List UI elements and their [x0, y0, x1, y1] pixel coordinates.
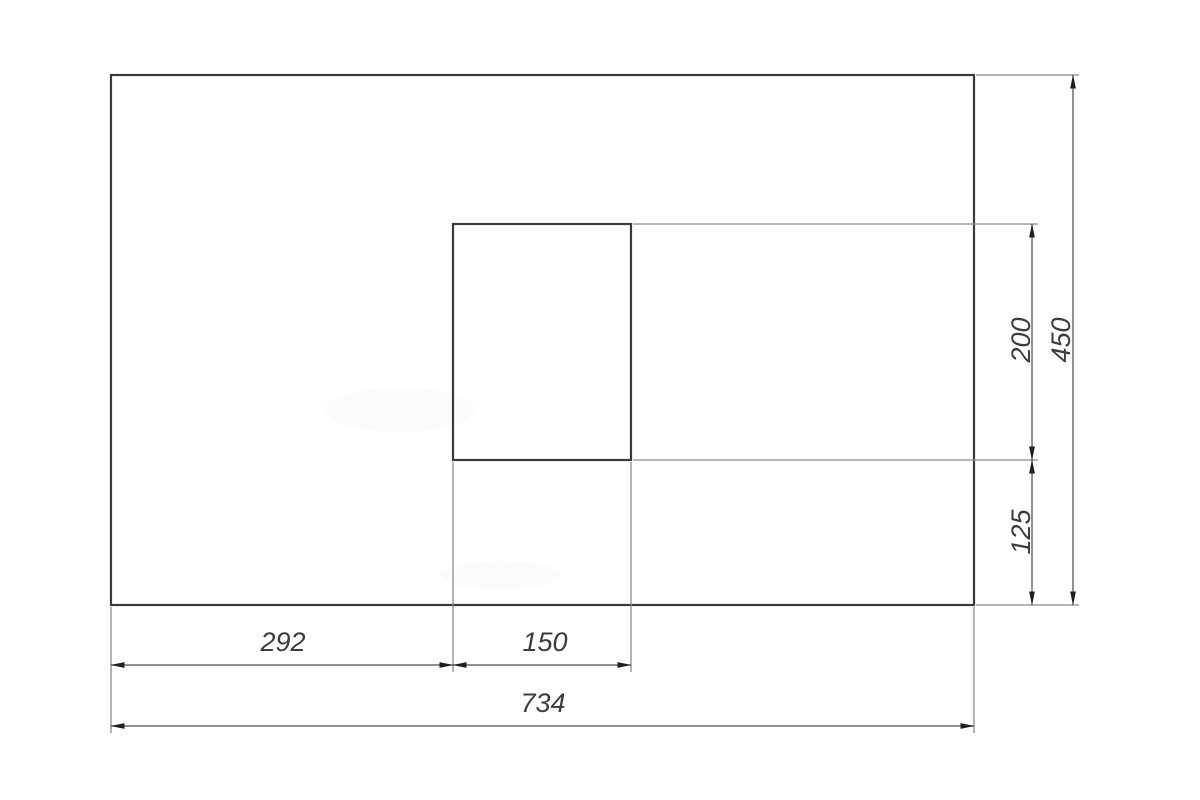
dimension-label-734: 734: [520, 688, 565, 718]
outer-panel-outline: [111, 75, 974, 605]
drawing-canvas: 292 150 734 200 450 125: [0, 0, 1200, 800]
watermark-smudge: [325, 388, 560, 589]
dimension-label-125: 125: [1006, 508, 1036, 554]
cutout-outline: [453, 224, 631, 460]
dimension-label-150: 150: [522, 627, 567, 657]
dimension-label-292: 292: [259, 627, 305, 657]
dimension-labels: 292 150 734 200 450 125: [259, 317, 1076, 718]
dimension-label-450: 450: [1046, 317, 1076, 362]
dimension-label-200: 200: [1006, 317, 1036, 363]
dimension-lines: [111, 75, 1073, 726]
technical-drawing: 292 150 734 200 450 125: [0, 0, 1200, 800]
extension-lines: [111, 75, 1079, 733]
